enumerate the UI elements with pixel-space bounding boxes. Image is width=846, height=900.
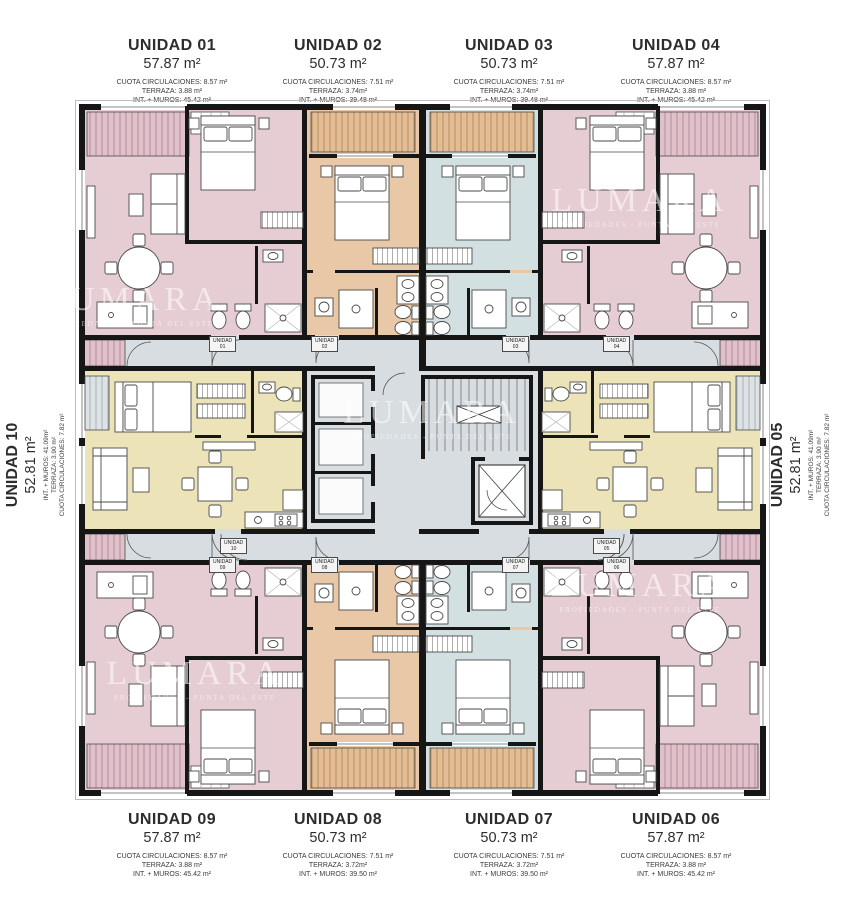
unit-area: 50.73 m²: [250, 55, 426, 73]
unit-name: UNIDAD 04: [588, 36, 764, 55]
unit-area: 57.87 m²: [588, 829, 764, 847]
unit-interior: INT. + MUROS: 39.50 m²: [250, 870, 426, 879]
unit-name: UNIDAD 01: [84, 36, 260, 55]
title-block-unidad-07: UNIDAD 07 50.73 m² CUOTA CIRCULACIONES: …: [421, 810, 597, 879]
title-block-unidad-03: UNIDAD 03 50.73 m² CUOTA CIRCULACIONES: …: [421, 36, 597, 105]
unit-terraza: TERRAZA: 3.88 m²: [588, 87, 764, 96]
unit-terraza: TERRAZA: 3.90 m²: [51, 414, 59, 517]
tag-line2: 03: [506, 344, 525, 350]
unit-name: UNIDAD 02: [250, 36, 426, 55]
unit-interior: INT. + MUROS: 39.50 m²: [421, 870, 597, 879]
floor-plan-svg: [75, 100, 770, 800]
plan-tag-unidad-07: UNIDAD07: [502, 557, 529, 573]
unit-circulaciones: CUOTA CIRCULACIONES: 8.57 m²: [588, 852, 764, 861]
unit-terraza: TERRAZA: 3.88 m²: [84, 861, 260, 870]
unit-circulaciones: CUOTA CIRCULACIONES: 7.51 m²: [421, 852, 597, 861]
unit-terraza: TERRAZA: 3.74m²: [250, 87, 426, 96]
unit-area: 57.87 m²: [84, 55, 260, 73]
title-block-unidad-08: UNIDAD 08 50.73 m² CUOTA CIRCULACIONES: …: [250, 810, 426, 879]
unit-circulaciones: CUOTA CIRCULACIONES: 8.57 m²: [84, 852, 260, 861]
tag-line2: 08: [315, 565, 334, 571]
floor-plan-page: UNIDAD 01 57.87 m² CUOTA CIRCULACIONES: …: [0, 0, 846, 900]
unit-area: 52.81 m²: [22, 436, 40, 493]
unit-details: CUOTA CIRCULACIONES: 8.57 m² TERRAZA: 3.…: [84, 852, 260, 879]
title-block-unidad-01: UNIDAD 01 57.87 m² CUOTA CIRCULACIONES: …: [84, 36, 260, 105]
unit-interior: INT. + MUROS: 45.42 m²: [84, 870, 260, 879]
unit-name: UNIDAD 08: [250, 810, 426, 829]
tag-line2: 06: [607, 565, 626, 571]
unit-terraza: TERRAZA: 3.88 m²: [84, 87, 260, 96]
unit-name: UNIDAD 06: [588, 810, 764, 829]
unit-name: UNIDAD 03: [421, 36, 597, 55]
unit-area: 57.87 m²: [588, 55, 764, 73]
unit-terraza: TERRAZA: 3.72m²: [250, 861, 426, 870]
unit-interior: INT. + MUROS: 41.09m²: [43, 414, 51, 517]
plan-tag-unidad-03: UNIDAD03: [502, 336, 529, 352]
unit-area: 50.73 m²: [421, 55, 597, 73]
unit-terraza: TERRAZA: 3.90 m²: [816, 414, 824, 517]
unit-area: 50.73 m²: [250, 829, 426, 847]
unit-circulaciones: CUOTA CIRCULACIONES: 7.51 m²: [421, 78, 597, 87]
unit-circulaciones: CUOTA CIRCULACIONES: 8.57 m²: [588, 78, 764, 87]
tag-line2: 04: [607, 344, 626, 350]
unit-name: UNIDAD 07: [421, 810, 597, 829]
plan-tag-unidad-02: UNIDAD02: [311, 336, 338, 352]
title-block-unidad-10: UNIDAD 10 52.81 m² INT. + MUROS: 41.09m²…: [1, 370, 69, 560]
unit-terraza: TERRAZA: 3.72m²: [421, 861, 597, 870]
title-block-unidad-04: UNIDAD 04 57.87 m² CUOTA CIRCULACIONES: …: [588, 36, 764, 105]
unit-area: 50.73 m²: [421, 829, 597, 847]
unit-circulaciones: CUOTA CIRCULACIONES: 7.82 m²: [59, 414, 67, 517]
tag-line2: 09: [213, 565, 232, 571]
unit-details: CUOTA CIRCULACIONES: 7.51 m² TERRAZA: 3.…: [250, 852, 426, 879]
unit-terraza: TERRAZA: 3.74m²: [421, 87, 597, 96]
plan-tag-unidad-01: UNIDAD01: [209, 336, 236, 352]
plan-tag-unidad-04: UNIDAD04: [603, 336, 630, 352]
unit-name: UNIDAD 09: [84, 810, 260, 829]
unit-details: INT. + MUROS: 41.09m² TERRAZA: 3.90 m² C…: [43, 414, 67, 517]
plan-tag-unidad-09: UNIDAD09: [209, 557, 236, 573]
tag-line2: 07: [506, 565, 525, 571]
tag-line2: 02: [315, 344, 334, 350]
unit-circulaciones: CUOTA CIRCULACIONES: 8.57 m²: [84, 78, 260, 87]
title-block-unidad-09: UNIDAD 09 57.87 m² CUOTA CIRCULACIONES: …: [84, 810, 260, 879]
plan-tag-unidad-05: UNIDAD05: [593, 538, 620, 554]
title-block-unidad-02: UNIDAD 02 50.73 m² CUOTA CIRCULACIONES: …: [250, 36, 426, 105]
title-block-unidad-06: UNIDAD 06 57.87 m² CUOTA CIRCULACIONES: …: [588, 810, 764, 879]
unit-circulaciones: CUOTA CIRCULACIONES: 7.82 m²: [824, 414, 832, 517]
floor-plan: UNIDAD01 UNIDAD02 UNIDAD03 UNIDAD04 UNID…: [75, 100, 770, 800]
plan-tag-unidad-10: UNIDAD10: [220, 538, 247, 554]
unit-name: UNIDAD 05: [768, 423, 787, 507]
unit-details: CUOTA CIRCULACIONES: 7.51 m² TERRAZA: 3.…: [421, 852, 597, 879]
unit-circulaciones: CUOTA CIRCULACIONES: 7.51 m²: [250, 78, 426, 87]
unit-interior: INT. + MUROS: 45.42 m²: [588, 870, 764, 879]
unit-name: UNIDAD 10: [3, 423, 22, 507]
plan-tag-unidad-08: UNIDAD08: [311, 557, 338, 573]
tag-line2: 10: [224, 546, 243, 552]
unit-interior: INT. + MUROS: 41.09m²: [808, 414, 816, 517]
plan-tag-unidad-06: UNIDAD06: [603, 557, 630, 573]
title-block-unidad-05: UNIDAD 05 52.81 m² INT. + MUROS: 41.09m²…: [766, 370, 834, 560]
unit-terraza: TERRAZA: 3.88 m²: [588, 861, 764, 870]
tag-line2: 01: [213, 344, 232, 350]
unit-circulaciones: CUOTA CIRCULACIONES: 7.51 m²: [250, 852, 426, 861]
tag-line2: 05: [597, 546, 616, 552]
unit-area: 57.87 m²: [84, 829, 260, 847]
unit-area: 52.81 m²: [787, 436, 805, 493]
unit-details: INT. + MUROS: 41.09m² TERRAZA: 3.90 m² C…: [808, 414, 832, 517]
unit-details: CUOTA CIRCULACIONES: 8.57 m² TERRAZA: 3.…: [588, 852, 764, 879]
